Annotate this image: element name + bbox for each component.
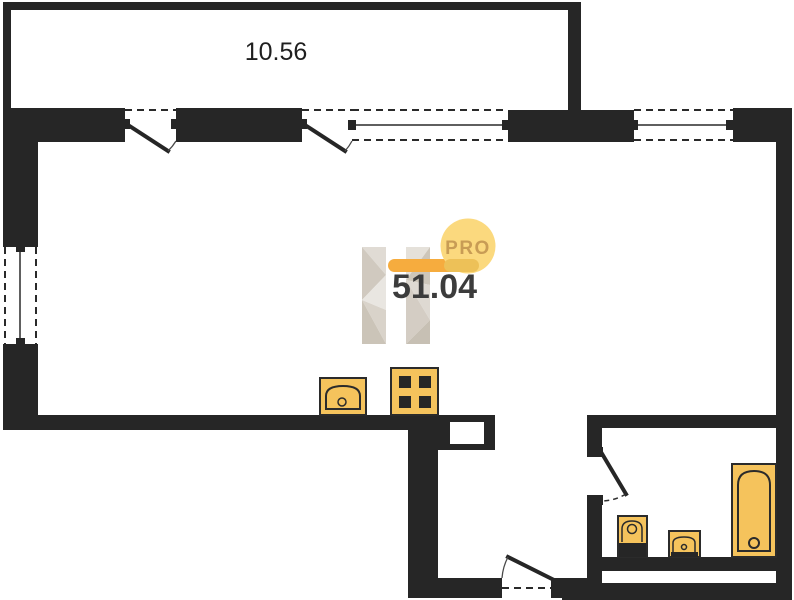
- floor-plan: PRO 10.56 51.04: [0, 0, 794, 600]
- washbasin-icon: [669, 531, 700, 557]
- kitchen-sink-icon: [320, 378, 366, 415]
- duct-niche: [450, 422, 484, 444]
- logo-pro-text: PRO: [445, 238, 491, 259]
- entry-door-jamb-left: [492, 578, 502, 598]
- balcony-door-left: [123, 110, 178, 151]
- bathtub-icon: [732, 464, 776, 557]
- window-left: [5, 244, 36, 346]
- walls: [3, 108, 792, 600]
- balcony-door-right: [300, 110, 352, 151]
- bathroom-door: [601, 452, 626, 501]
- toilet-icon: [618, 516, 647, 557]
- entry-door: [502, 557, 556, 588]
- balcony-area-label: 10.56: [229, 39, 323, 65]
- bath-door-jamb-bottom: [587, 495, 603, 505]
- stove-icon: [391, 368, 438, 415]
- apartment-area-label: 51.04: [374, 270, 495, 306]
- pro-logo: PRO: [388, 219, 496, 274]
- window-top-1: [348, 110, 510, 140]
- window-top-2: [630, 110, 734, 140]
